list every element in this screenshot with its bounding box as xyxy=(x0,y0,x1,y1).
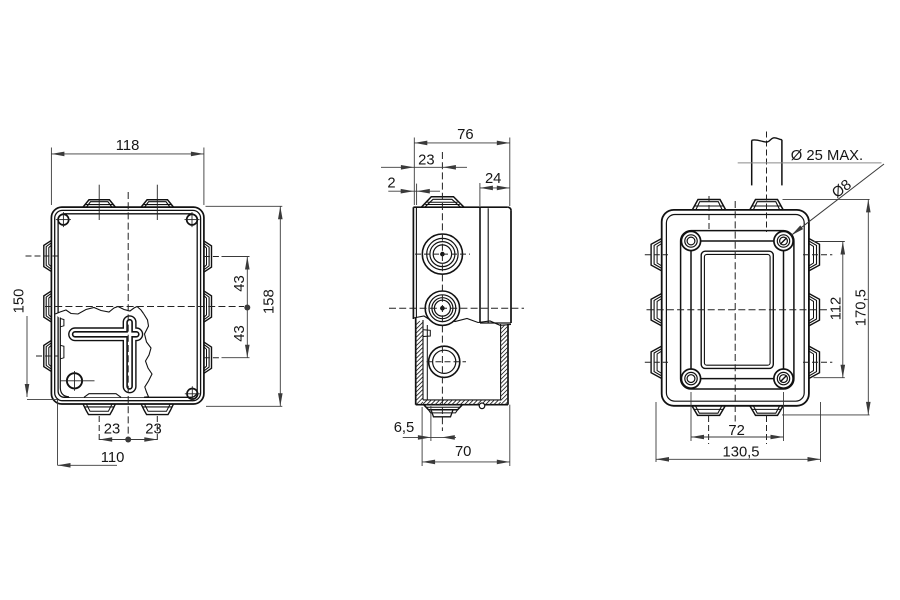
svg-text:43: 43 xyxy=(232,275,248,291)
svg-text:23: 23 xyxy=(418,152,434,168)
svg-text:170,5: 170,5 xyxy=(854,289,870,326)
svg-text:70: 70 xyxy=(455,444,471,460)
svg-text:72: 72 xyxy=(728,423,744,439)
svg-text:76: 76 xyxy=(457,127,473,143)
svg-text:23: 23 xyxy=(145,422,161,438)
svg-text:118: 118 xyxy=(116,138,140,154)
svg-text:43: 43 xyxy=(232,325,248,341)
svg-text:2: 2 xyxy=(387,176,395,192)
svg-text:23: 23 xyxy=(104,422,120,438)
svg-text:158: 158 xyxy=(262,289,278,314)
svg-text:150: 150 xyxy=(12,289,28,314)
svg-text:130,5: 130,5 xyxy=(722,445,759,461)
svg-text:112: 112 xyxy=(829,297,845,321)
svg-text:24: 24 xyxy=(485,171,501,187)
svg-text:110: 110 xyxy=(101,450,125,466)
svg-text:6,5: 6,5 xyxy=(394,420,415,436)
svg-text:Ø 25 MAX.: Ø 25 MAX. xyxy=(791,148,863,164)
